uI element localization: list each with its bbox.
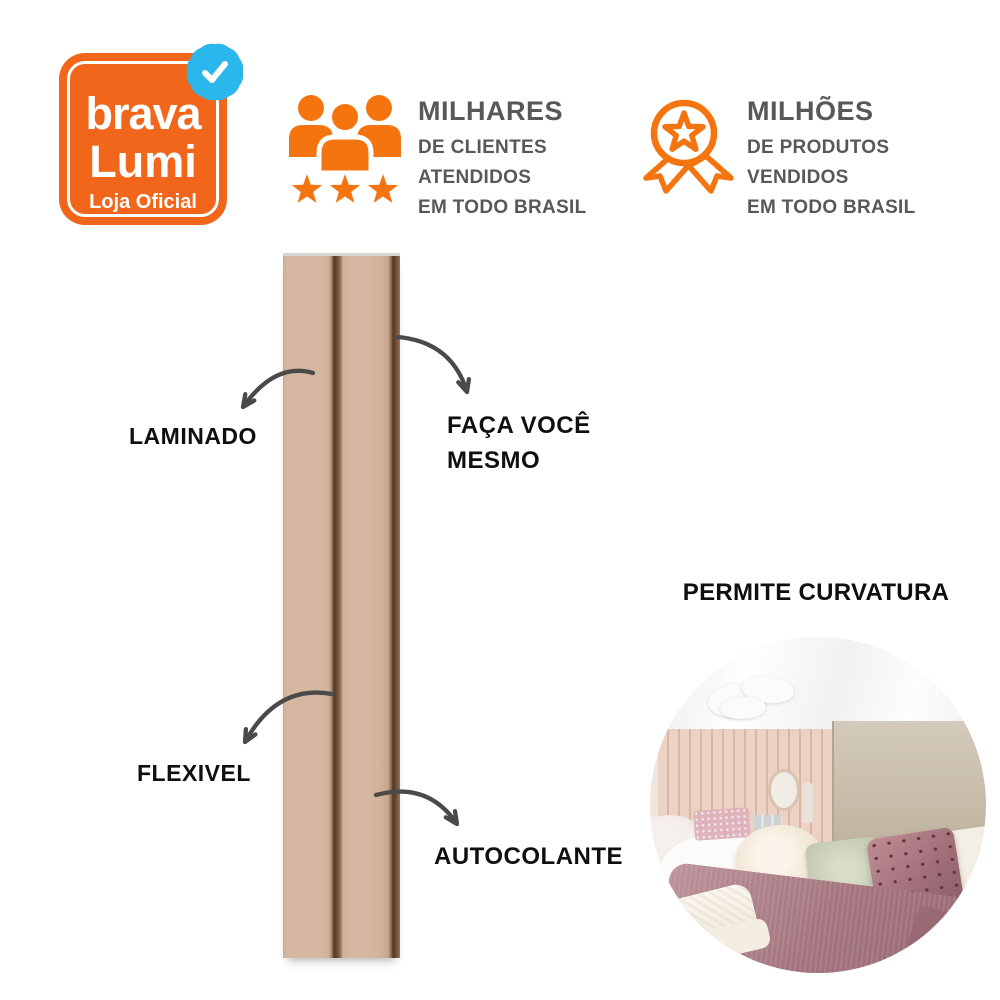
stat-products-line: EM TODO BRASIL bbox=[747, 193, 977, 223]
stat-products-line: VENDIDOS bbox=[747, 163, 977, 193]
stat-products-title: MILHÕES bbox=[747, 97, 977, 125]
stat-customers-title: MILHARES bbox=[418, 97, 648, 125]
stat-customers-line: ATENDIDOS bbox=[418, 163, 648, 193]
decor-box bbox=[693, 807, 751, 841]
logo-brand-name-line2: Lumi bbox=[59, 139, 227, 184]
arrow-to-faca-voce-mesmo-icon bbox=[393, 330, 481, 402]
logo-subtitle: Loja Oficial bbox=[59, 191, 227, 214]
customers-people-stars-icon bbox=[287, 93, 403, 207]
stat-products-line: DE PRODUTOS bbox=[747, 133, 977, 163]
stat-customers-line: DE CLIENTES bbox=[418, 133, 648, 163]
tall-perfume-bottle bbox=[802, 783, 813, 823]
arrow-to-autocolante-icon bbox=[372, 786, 467, 838]
feature-label-faca-voce-mesmo: FAÇA VOCÊ MESMO bbox=[447, 408, 607, 478]
vanity-mirror bbox=[768, 769, 800, 811]
product-infographic: brava Lumi Loja Oficial MILHARES DE CLIE… bbox=[0, 0, 1000, 1000]
medal-ribbon-icon bbox=[641, 88, 737, 208]
stat-customers-line: EM TODO BRASIL bbox=[418, 193, 648, 223]
feature-label-flexivel: FLEXIVEL bbox=[137, 760, 251, 787]
panel-top-edge bbox=[283, 253, 400, 256]
feature-label-laminado: LAMINADO bbox=[129, 423, 257, 450]
feature-label-autocolante: AUTOCOLANTE bbox=[434, 843, 623, 871]
curvature-title: PERMITE CURVATURA bbox=[660, 579, 972, 607]
stat-customers: MILHARES DE CLIENTES ATENDIDOS EM TODO B… bbox=[418, 97, 648, 223]
arrow-to-laminado-icon bbox=[233, 356, 328, 418]
verified-check-icon bbox=[181, 38, 249, 106]
arrow-to-flexivel-icon bbox=[237, 686, 337, 750]
bedroom-with-slat-panel-photo bbox=[650, 637, 986, 973]
stat-products: MILHÕES DE PRODUTOS VENDIDOS EM TODO BRA… bbox=[747, 97, 977, 223]
checkmark-glyph bbox=[195, 52, 235, 92]
